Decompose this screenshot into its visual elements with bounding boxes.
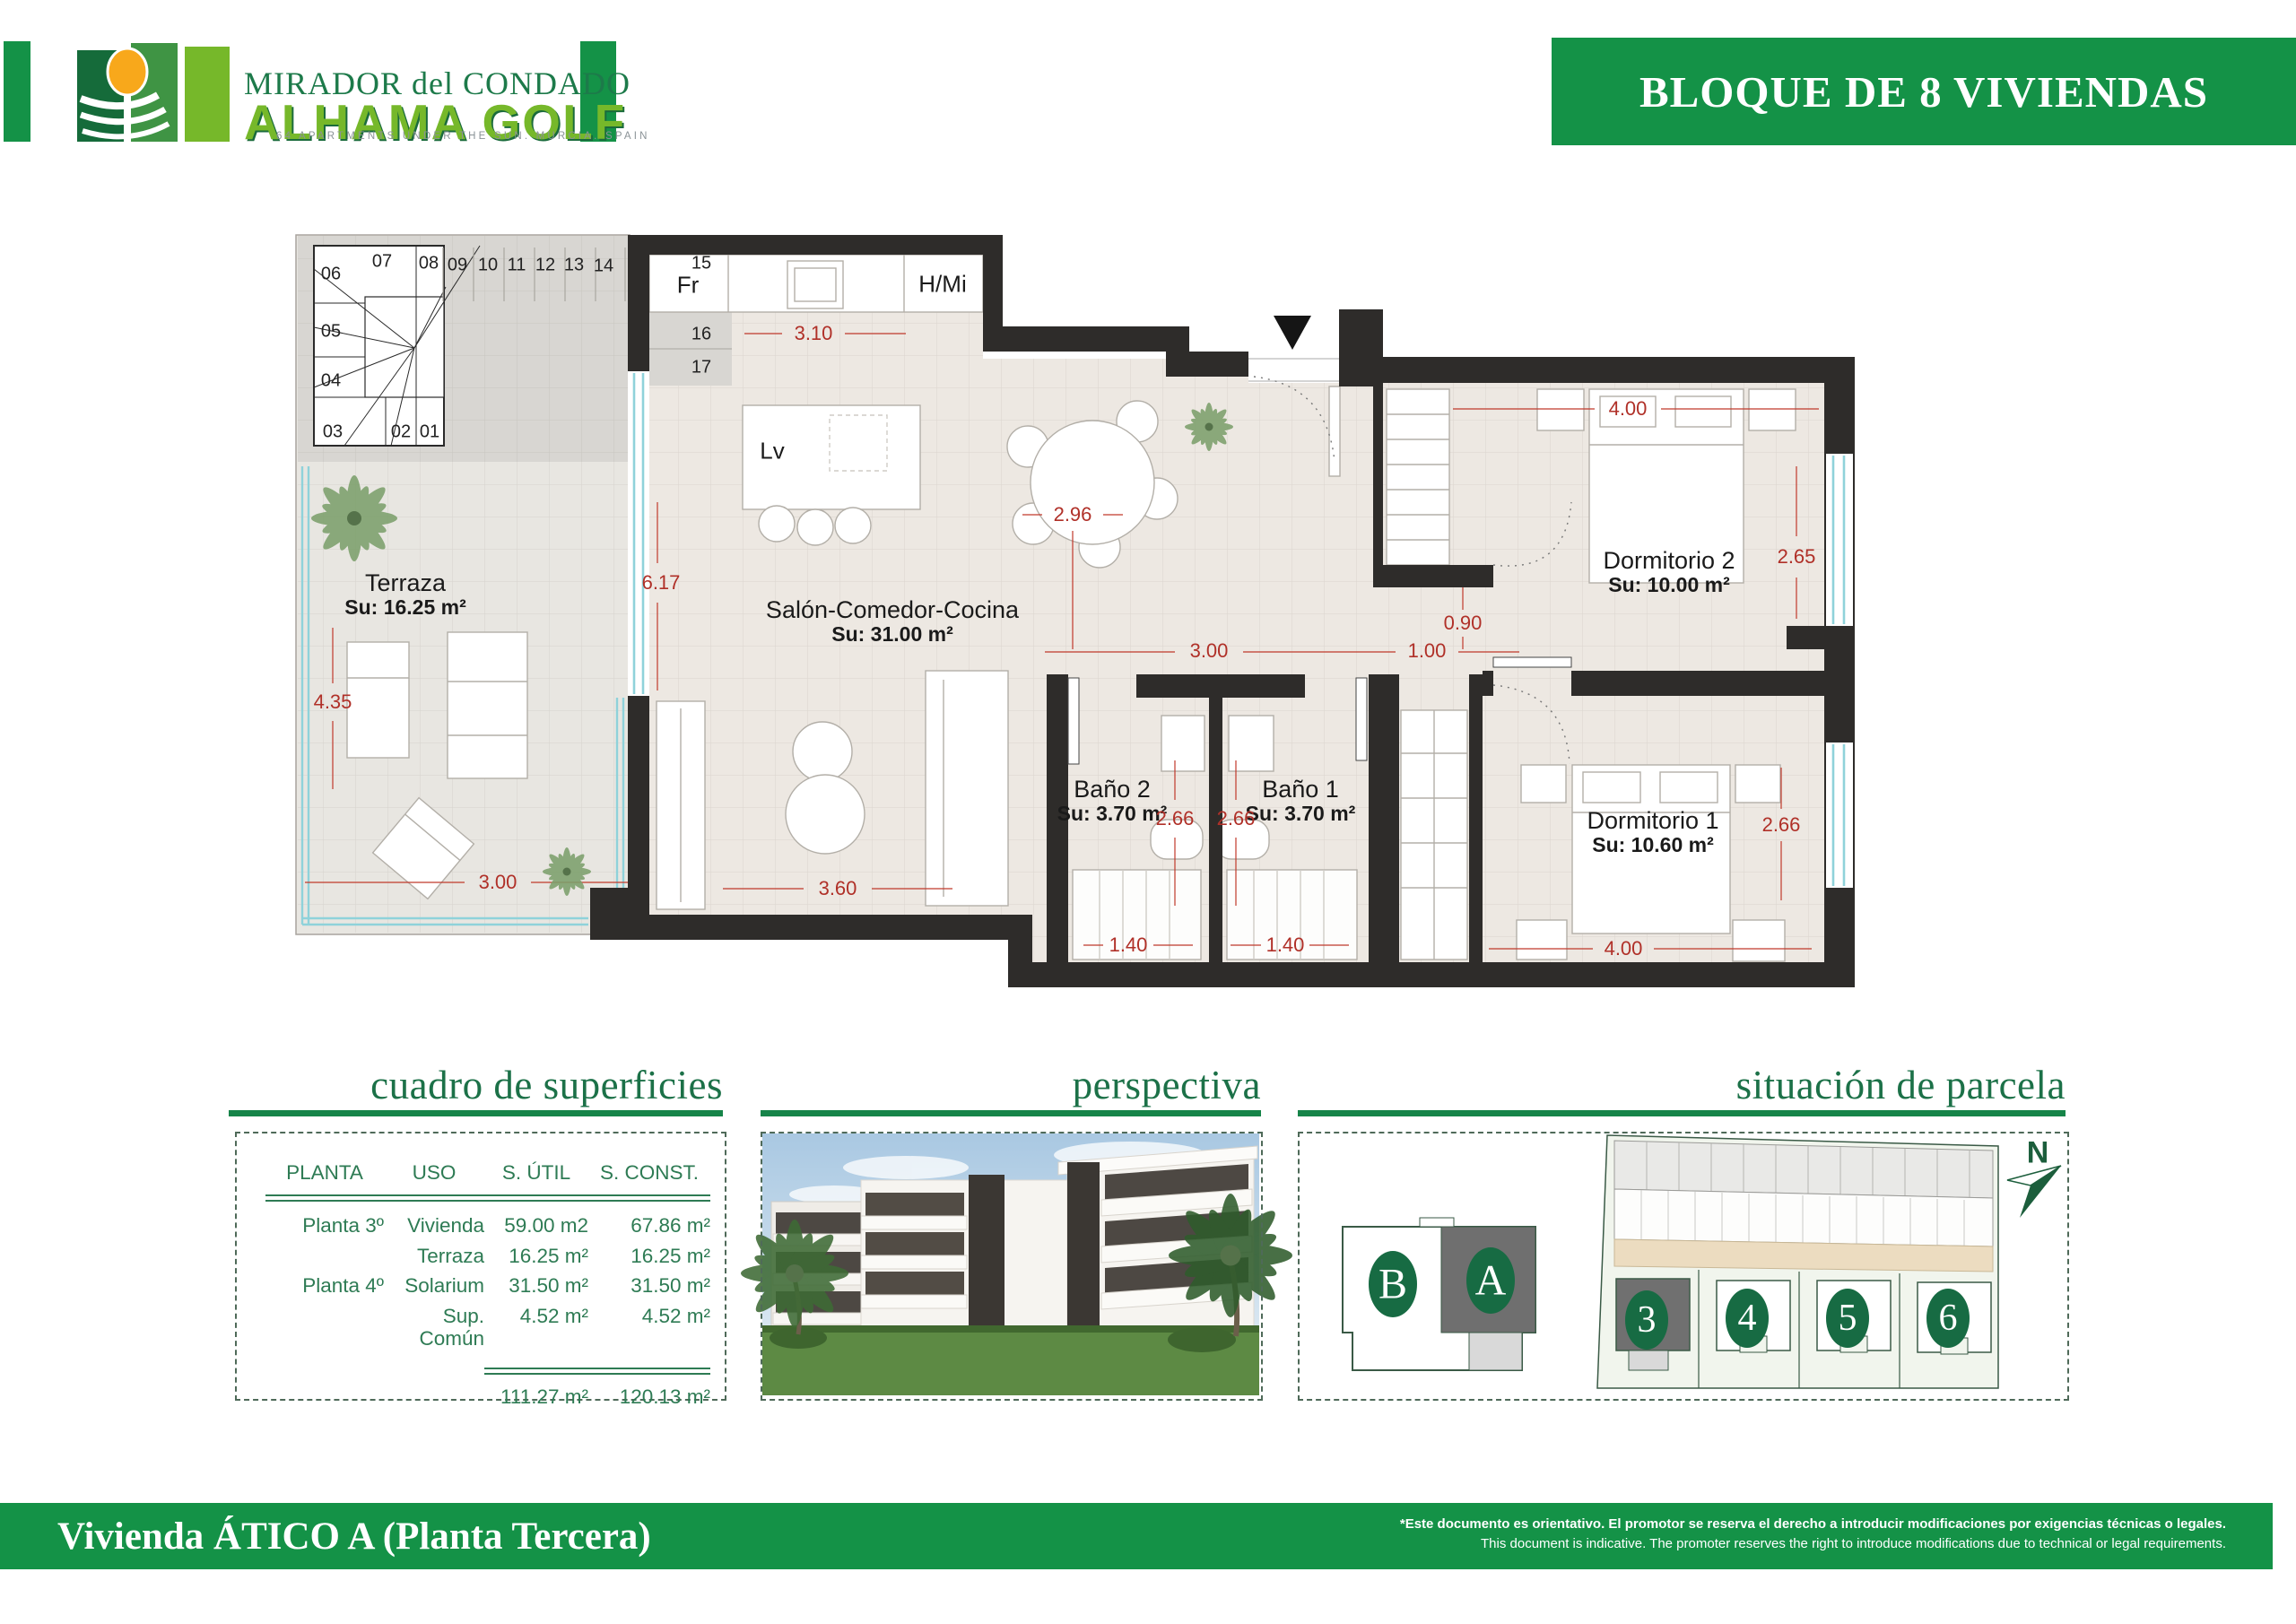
dorm1-wardrobe <box>1401 710 1467 960</box>
parcel-5-label: 5 <box>1839 1297 1857 1340</box>
palm-plant <box>1185 403 1233 451</box>
stair-number: 08 <box>419 254 439 274</box>
brand-logo-icon <box>77 43 237 149</box>
table-cell: 16.25 m² <box>484 1246 588 1268</box>
header-banner: BLOQUE DE 8 VIVIENDAS <box>1552 38 2296 145</box>
footer-disclaimer: *Este documento es orientativo. El promo… <box>1400 1515 2226 1554</box>
table-cell: Terraza <box>384 1246 484 1268</box>
dim-label: 4.00 <box>1609 397 1648 421</box>
header-left-bar <box>4 41 30 142</box>
stair-number: 11 <box>508 256 526 276</box>
surfaces-table: PLANTA USO S. ÚTIL S. CONST. Planta 3º V… <box>265 1162 710 1408</box>
dim-label: 1.00 <box>1408 639 1447 663</box>
col-header-sconst: S. CONST. <box>588 1162 710 1185</box>
footer-title: Vivienda ÁTICO A (Planta Tercera) <box>57 1503 651 1569</box>
perspective-title: perspectiva <box>761 1062 1261 1108</box>
dim-label: 2.96 <box>1054 503 1092 526</box>
site-title: situación de parcela <box>1298 1062 2066 1108</box>
dim-label: 2.66 <box>1762 813 1801 837</box>
block-b-label: B <box>1378 1260 1407 1309</box>
appliance-oven-label: H/Mi <box>918 271 966 299</box>
stair-number: 17 <box>691 358 711 378</box>
sofa <box>926 671 1008 906</box>
col-header-sutil: S. ÚTIL <box>484 1162 588 1185</box>
palm-plant <box>311 475 397 561</box>
apartment-plan <box>296 235 1855 987</box>
table-cell <box>265 1246 384 1268</box>
stair-number: 12 <box>535 256 555 276</box>
dim-label: 4.00 <box>1605 937 1643 960</box>
perspective-panel <box>761 1132 1263 1401</box>
dim-label: 2.65 <box>1778 545 1816 569</box>
table-cell: Vivienda <box>384 1215 484 1238</box>
stair-number: 14 <box>594 256 613 277</box>
table-cell: Sup. Común <box>384 1306 484 1350</box>
table-cell: Solarium <box>384 1275 484 1298</box>
surfaces-rule <box>229 1110 723 1116</box>
table-cell: 31.50 m² <box>588 1275 710 1298</box>
parcel-4-label: 4 <box>1738 1297 1757 1340</box>
stair-number: 01 <box>420 422 439 443</box>
dim-label: 2.66 <box>1156 807 1195 830</box>
pouf <box>793 722 852 781</box>
parcel-3-label: 3 <box>1638 1298 1657 1342</box>
total-util: 111.27 m² <box>484 1386 588 1409</box>
stair-number: 03 <box>323 422 343 443</box>
room-label-bano-1: Baño 1Su: 3.70 m² <box>1246 776 1356 826</box>
stair-number: 09 <box>448 256 467 276</box>
table-cell: 4.52 m² <box>588 1306 710 1350</box>
col-header-uso: USO <box>384 1162 484 1185</box>
logo-title-line2: ALHAMA GOLF <box>244 93 626 151</box>
site-rule <box>1298 1110 2066 1116</box>
palm-plant <box>543 847 591 896</box>
table-cell: 4.52 m² <box>484 1306 588 1350</box>
pouf <box>786 775 865 854</box>
stair-number: 16 <box>691 325 711 345</box>
logo-tagline: 64 APARTMENTS UNDER THE SUN. MURCIA. SPA… <box>276 131 650 142</box>
room-label-bano-2: Baño 2Su: 3.70 m² <box>1057 776 1168 826</box>
stair-number: 15 <box>691 254 711 274</box>
total-const: 120.13 m² <box>588 1386 710 1409</box>
stair-number: 05 <box>321 322 341 343</box>
plan-sheet: MIRADOR del CONDADO ALHAMA GOLF 64 APART… <box>0 0 2296 1624</box>
table-cell: Planta 4º <box>265 1275 384 1298</box>
room-label-salon: Salón-Comedor-CocinaSu: 31.00 m² <box>766 596 1019 647</box>
block-title: BLOQUE DE 8 VIVIENDAS <box>1639 66 2208 117</box>
parcel-6-label: 6 <box>1939 1297 1958 1340</box>
dim-label: 3.60 <box>819 877 857 900</box>
dim-label: 3.00 <box>479 871 517 894</box>
sideboard <box>657 701 705 909</box>
dim-label: 3.10 <box>795 322 833 345</box>
disclaimer-es: *Este documento es orientativo. El promo… <box>1400 1515 2226 1534</box>
dim-label: 6.17 <box>642 571 681 595</box>
stair-number: 04 <box>321 371 341 392</box>
table-cell: 67.86 m² <box>588 1215 710 1238</box>
dim-label: 1.40 <box>1266 934 1305 957</box>
stair-number: 13 <box>564 256 584 276</box>
north-label: N <box>2027 1136 2049 1171</box>
stair-number: 02 <box>391 422 411 443</box>
dim-label: 2.66 <box>1217 807 1256 830</box>
entrance-arrow <box>1274 316 1311 350</box>
table-cell: Planta 3º <box>265 1215 384 1238</box>
appliance-dishwasher-label: Lv <box>760 438 784 465</box>
table-total-rule <box>484 1368 710 1375</box>
col-header-planta: PLANTA <box>265 1162 384 1185</box>
room-label-terraza: TerrazaSu: 16.25 m² <box>344 569 466 620</box>
room-label-dormitorio-2: Dormitorio 2Su: 10.00 m² <box>1603 547 1735 597</box>
table-header-rule <box>265 1194 710 1202</box>
perspective-rule <box>761 1110 1261 1116</box>
appliance-fridge-label: Fr <box>677 272 700 300</box>
site-panel <box>1298 1132 2069 1401</box>
table-cell: 16.25 m² <box>588 1246 710 1268</box>
surfaces-title: cuadro de superficies <box>269 1062 723 1108</box>
room-label-dormitorio-1: Dormitorio 1Su: 10.60 m² <box>1587 807 1718 857</box>
dim-label: 0.90 <box>1444 612 1483 635</box>
disclaimer-en: This document is indicative. The promote… <box>1400 1534 2226 1554</box>
table-cell <box>265 1306 384 1350</box>
stair-number: 06 <box>321 265 341 285</box>
table-cell: 31.50 m² <box>484 1275 588 1298</box>
stair-number: 10 <box>478 256 498 276</box>
dim-label: 1.40 <box>1109 934 1148 957</box>
dim-label: 4.35 <box>314 690 352 714</box>
stair-number: 07 <box>372 252 392 273</box>
block-a-label: A <box>1475 1256 1507 1306</box>
dim-label: 3.00 <box>1190 639 1229 663</box>
table-cell: 59.00 m2 <box>484 1215 588 1238</box>
